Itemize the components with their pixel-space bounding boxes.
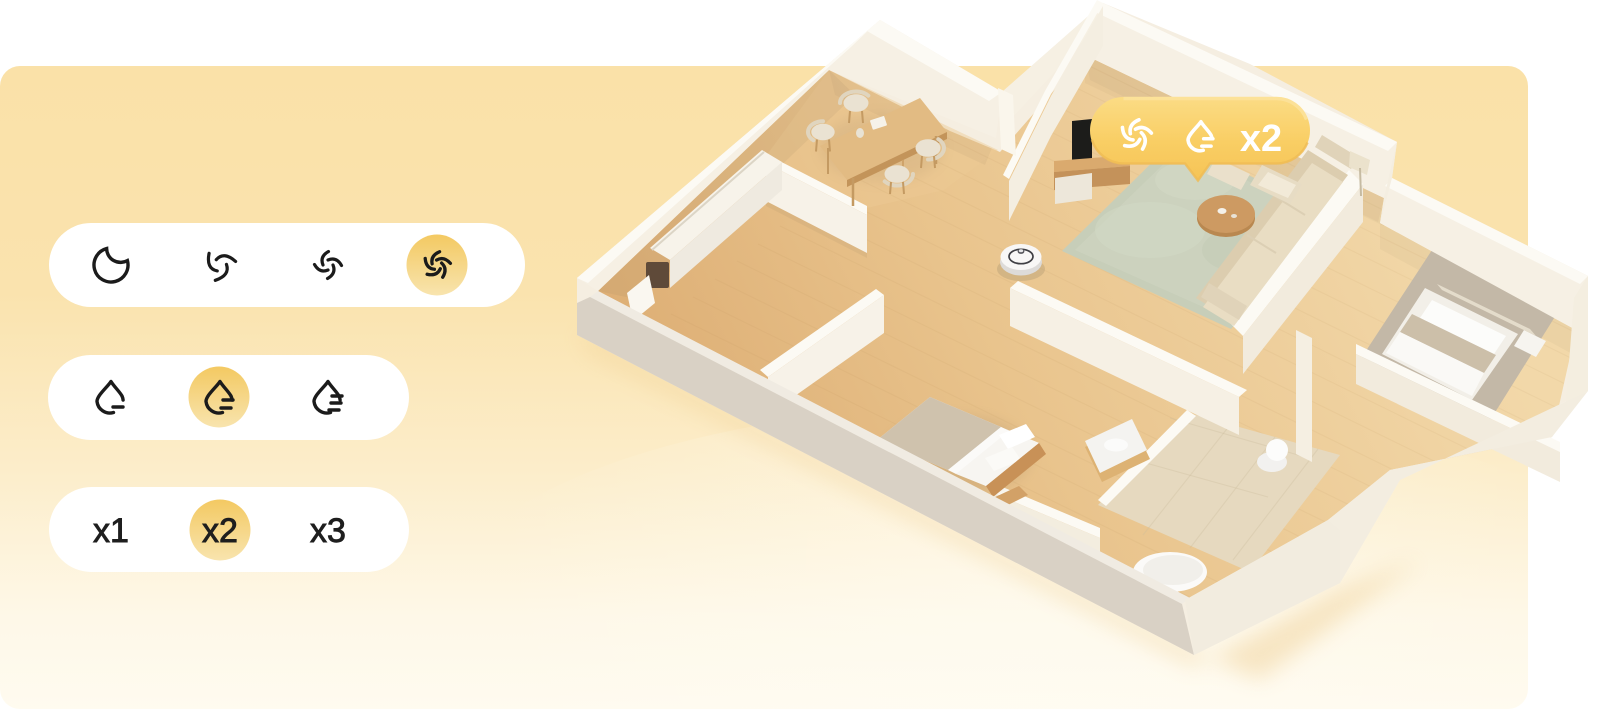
svg-text:x2: x2 bbox=[202, 512, 238, 550]
svg-text:x3: x3 bbox=[310, 512, 346, 550]
svg-text:x1: x1 bbox=[93, 512, 129, 550]
svg-text:x2: x2 bbox=[1240, 118, 1282, 160]
